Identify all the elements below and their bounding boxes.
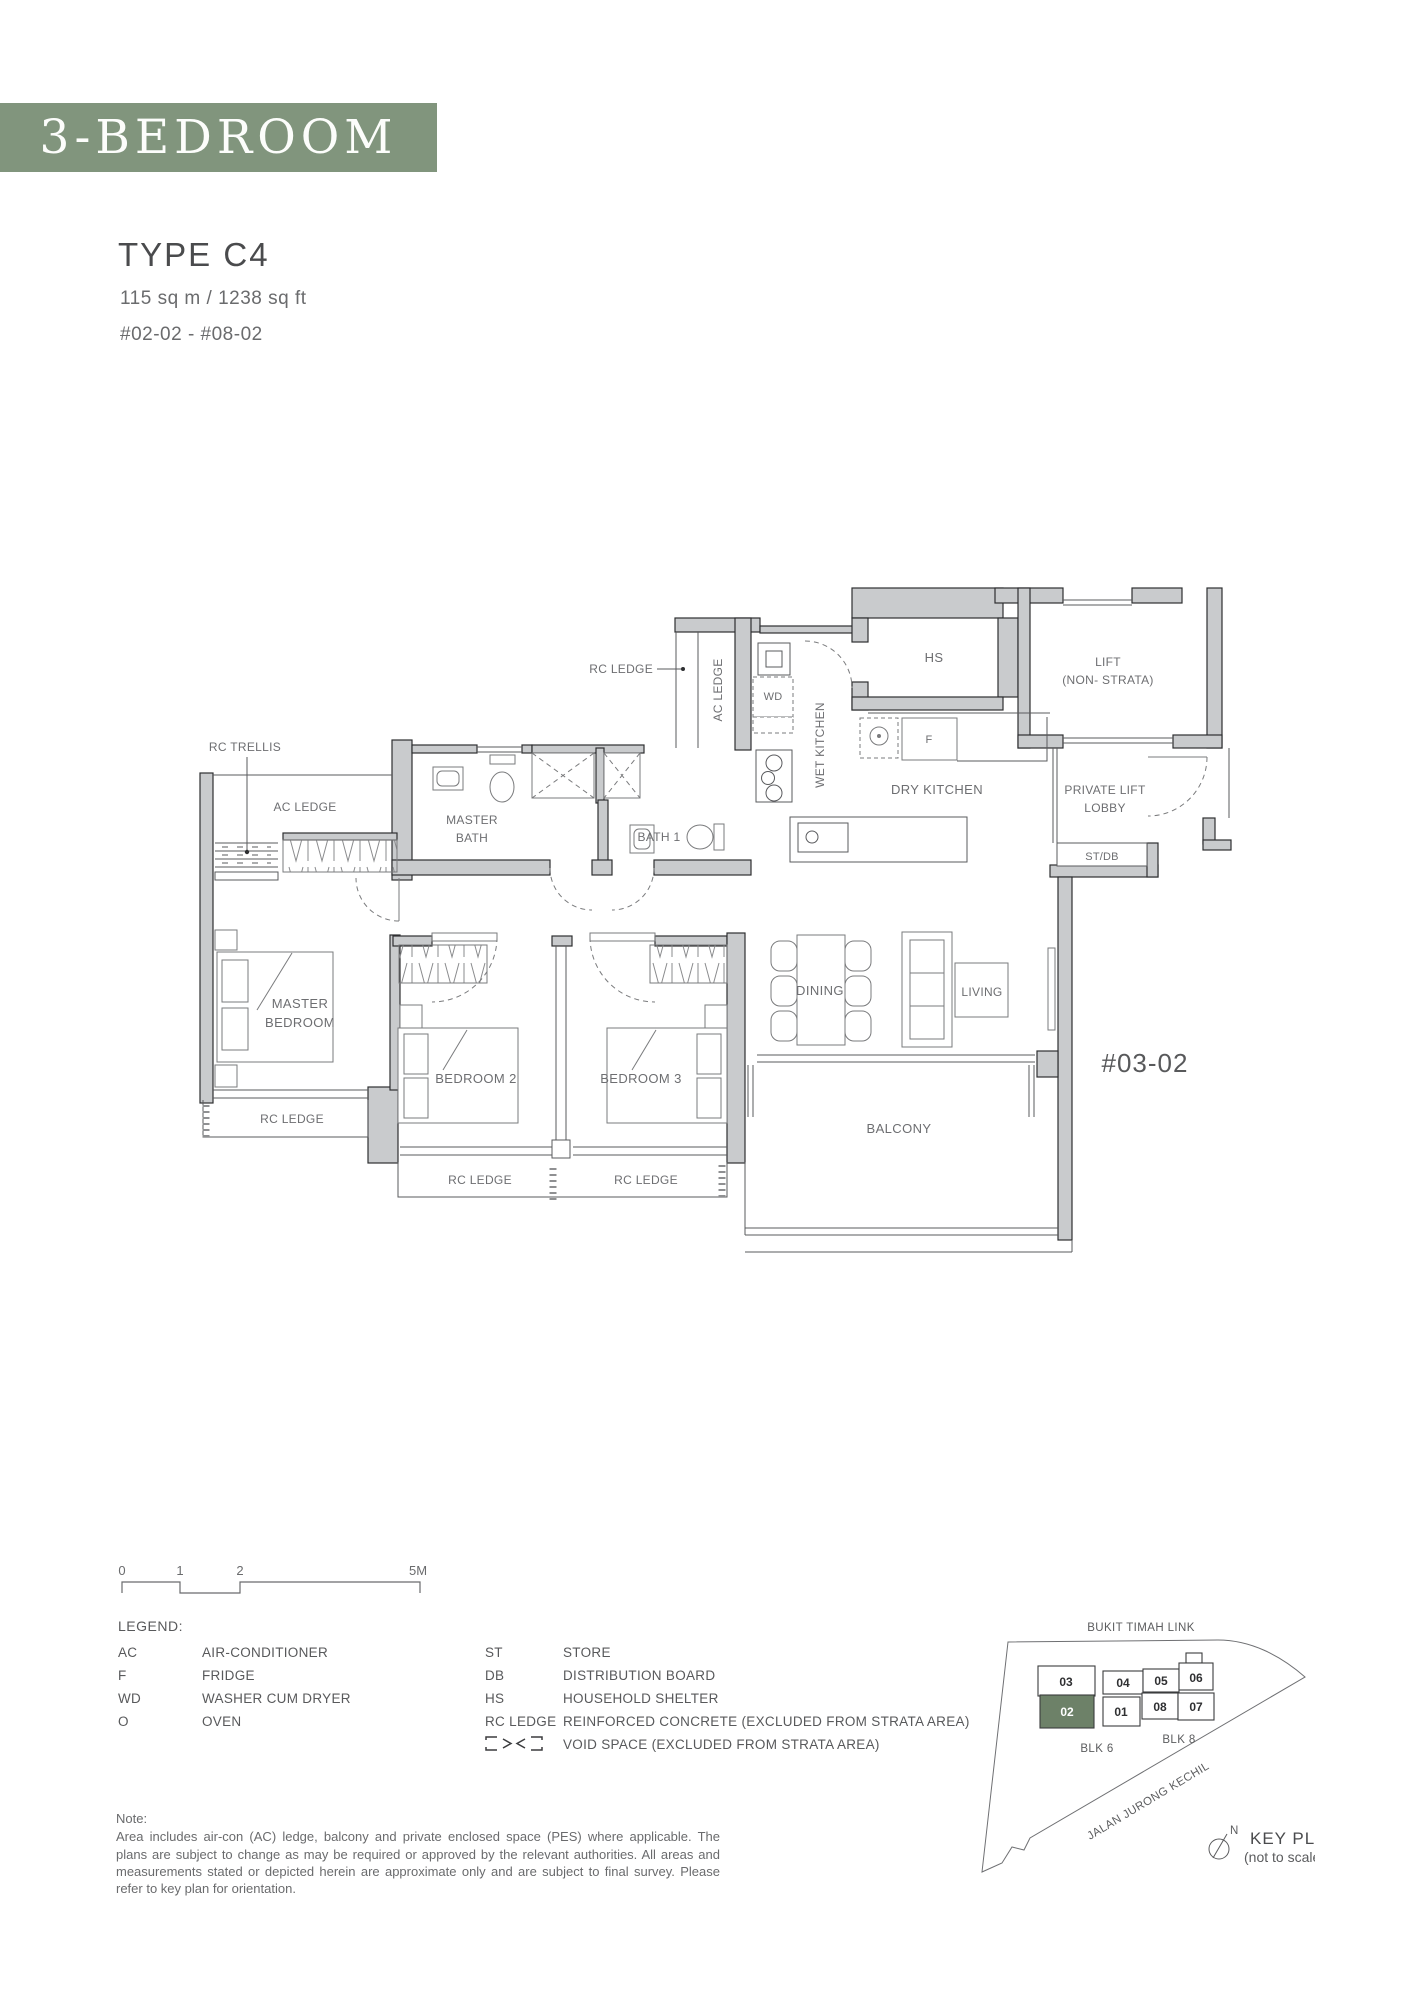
- label-ac-ledge-master: AC LEDGE: [273, 800, 336, 814]
- label-rc-ledge-bedroom2: RC LEDGE: [448, 1173, 512, 1187]
- keyplan-unit-08: 08: [1153, 1700, 1167, 1714]
- legend-item-ac: AC AIR-CONDITIONER: [118, 1641, 351, 1664]
- label-blk6: BLK 6: [1080, 1743, 1113, 1755]
- label-master-bath-2: BATH: [456, 831, 488, 845]
- legend-item-db: DB DISTRIBUTION BOARD: [485, 1664, 970, 1687]
- keyplan-unit-05: 05: [1154, 1674, 1168, 1688]
- legend-item-wd: WD WASHER CUM DRYER: [118, 1687, 351, 1710]
- label-bath1: BATH 1: [638, 830, 681, 844]
- floorplan-brochure-page: 3-BEDROOM TYPE C4 115 sq m / 1238 sq ft …: [0, 0, 1414, 2000]
- keyplan-unit-03: 03: [1059, 1675, 1073, 1689]
- keyplan-unit-07: 07: [1189, 1700, 1203, 1714]
- label-st-db: ST/DB: [1085, 851, 1118, 863]
- keyplan-unit-02: 02: [1060, 1705, 1074, 1719]
- legend-item-o: O OVEN: [118, 1710, 351, 1733]
- label-master-bedroom-1: MASTER: [272, 996, 329, 1011]
- label-rc-ledge-master: RC LEDGE: [260, 1112, 324, 1126]
- label-private-lift-lobby-1: PRIVATE LIFT: [1064, 783, 1146, 797]
- label-wet-kitchen: WET KITCHEN: [813, 702, 827, 788]
- label-wd: WD: [764, 691, 783, 703]
- label-master-bedroom-2: BEDROOM: [265, 1015, 335, 1030]
- void-space-symbol: [485, 1736, 543, 1751]
- note-block: Note: Area includes air-con (AC) ledge, …: [116, 1810, 720, 1897]
- label-rc-ledge-bedroom3: RC LEDGE: [614, 1173, 678, 1187]
- label-fridge: F: [926, 734, 933, 746]
- legend-item-void-space: VOID SPACE (EXCLUDED FROM STRATA AREA): [485, 1733, 970, 1756]
- scale-bar: 0 1 2 5M: [100, 1553, 440, 1608]
- north-label: N: [1230, 1825, 1239, 1837]
- label-dry-kitchen: DRY KITCHEN: [891, 782, 983, 797]
- label-dining: DINING: [796, 983, 844, 998]
- legend-column-2: ST STORE DB DISTRIBUTION BOARD HS HOUSEH…: [485, 1641, 970, 1756]
- road-label-top: BUKIT TIMAH LINK: [1087, 1622, 1195, 1634]
- legend-item-rc-ledge: RC LEDGE REINFORCED CONCRETE (EXCLUDED F…: [485, 1710, 970, 1733]
- label-rc-ledge-top: RC LEDGE: [589, 662, 653, 676]
- label-rc-trellis: RC TRELLIS: [209, 740, 281, 754]
- legend-item-f: F FRIDGE: [118, 1664, 351, 1687]
- legend-title: LEGEND:: [118, 1618, 183, 1634]
- north-arrow-icon: N: [1209, 1825, 1239, 1859]
- keyplan-unit-01: 01: [1114, 1705, 1128, 1719]
- label-balcony: BALCONY: [867, 1121, 932, 1136]
- scale-tick-5m: 5M: [409, 1563, 427, 1578]
- bedroom-type-banner: 3-BEDROOM: [0, 103, 437, 172]
- label-ac-ledge-kitchen: AC LEDGE: [711, 658, 725, 721]
- bath1-toilet: [687, 825, 713, 849]
- bedroom3-wardrobe: [650, 945, 727, 983]
- tv-console: [1048, 948, 1055, 1030]
- label-blk8: BLK 8: [1162, 1734, 1195, 1746]
- label-bedroom2: BEDROOM 2: [435, 1071, 517, 1086]
- label-lift-2: (NON- STRATA): [1062, 673, 1153, 687]
- label-private-lift-lobby-2: LOBBY: [1084, 801, 1126, 815]
- note-body: Area includes air-con (AC) ledge, balcon…: [116, 1828, 720, 1897]
- banner-title: 3-BEDROOM: [40, 110, 398, 165]
- legend-column-1: AC AIR-CONDITIONER F FRIDGE WD WASHER CU…: [118, 1641, 351, 1733]
- floor-plan: RC LEDGE AC LEDGE WD WET KITCHEN HS LIFT…: [195, 445, 1235, 1265]
- keyplan-subtitle: (not to scale): [1244, 1849, 1315, 1865]
- unit-type-title: TYPE C4: [118, 236, 270, 274]
- label-living: LIVING: [961, 985, 1002, 999]
- label-hs: HS: [925, 650, 944, 665]
- road-label-side: JALAN JURONG KECHIL: [1085, 1760, 1211, 1842]
- legend-item-st: ST STORE: [485, 1641, 970, 1664]
- keyplan-unit-06: 06: [1189, 1671, 1203, 1685]
- master-wardrobe: [283, 840, 397, 872]
- scale-tick-2: 2: [236, 1563, 243, 1578]
- legend-item-hs: HS HOUSEHOLD SHELTER: [485, 1687, 970, 1710]
- master-bath-toilet: [490, 772, 514, 802]
- scale-tick-1: 1: [176, 1563, 183, 1578]
- label-lift-1: LIFT: [1095, 655, 1121, 669]
- keyplan-title: KEY PLAN: [1250, 1829, 1315, 1848]
- note-title: Note:: [116, 1810, 720, 1827]
- label-stack-number: #03-02: [1102, 1048, 1189, 1078]
- scale-tick-0: 0: [118, 1563, 125, 1578]
- bedroom2-wardrobe: [399, 945, 487, 983]
- unit-range: #02-02 - #08-02: [120, 324, 263, 346]
- key-plan: BUKIT TIMAH LINK 03 04 05 06 02 01 08 07…: [975, 1608, 1315, 1888]
- label-bedroom3: BEDROOM 3: [600, 1071, 682, 1086]
- unit-area: 115 sq m / 1238 sq ft: [120, 288, 307, 310]
- label-master-bath-1: MASTER: [446, 813, 498, 827]
- keyplan-unit-04: 04: [1116, 1676, 1130, 1690]
